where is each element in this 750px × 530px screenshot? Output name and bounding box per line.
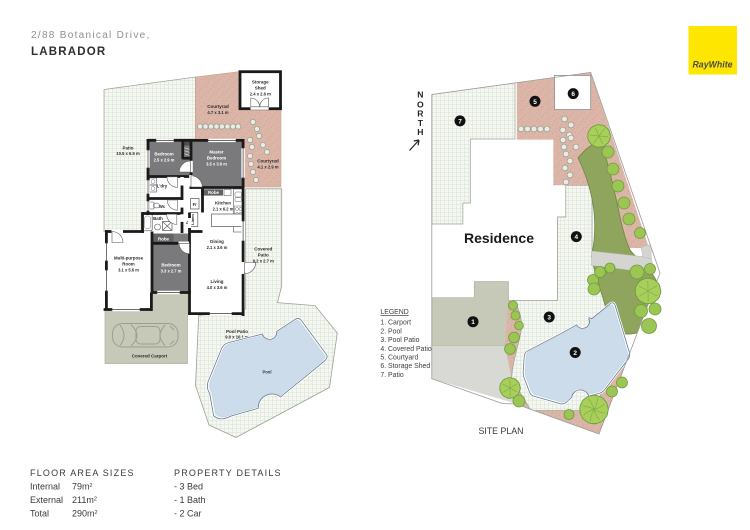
svg-text:Bath: Bath xyxy=(153,216,163,221)
svg-text:Pool: Pool xyxy=(262,370,271,375)
svg-text:H: H xyxy=(417,127,423,137)
svg-text:Multi-purpose: Multi-purpose xyxy=(114,256,144,261)
svg-text:3. Pool Patio: 3. Pool Patio xyxy=(380,337,419,344)
svg-text:3.1 x 5.6 m: 3.1 x 5.6 m xyxy=(118,268,139,273)
svg-text:7: 7 xyxy=(458,118,462,125)
svg-text:- 1 Bath: - 1 Bath xyxy=(174,495,206,505)
svg-text:Pool Patio: Pool Patio xyxy=(226,329,248,334)
svg-text:Patio: Patio xyxy=(122,146,133,151)
svg-text:6. Storage Shed: 6. Storage Shed xyxy=(380,363,430,370)
svg-text:Courtyrad: Courtyrad xyxy=(207,104,229,109)
svg-text:SITE PLAN: SITE PLAN xyxy=(479,426,524,436)
svg-text:Bedroom: Bedroom xyxy=(161,263,180,268)
svg-text:Covered Carport: Covered Carport xyxy=(132,353,168,358)
svg-text:1: 1 xyxy=(471,319,475,326)
svg-text:3.3 x 2.7 m: 3.3 x 2.7 m xyxy=(161,269,182,274)
svg-text:- 3 Bed: - 3 Bed xyxy=(174,482,203,492)
svg-text:N: N xyxy=(417,89,423,99)
svg-text:Bedroom: Bedroom xyxy=(154,152,173,157)
svg-text:L’dry: L’dry xyxy=(157,184,168,189)
svg-text:7. Patio: 7. Patio xyxy=(380,372,404,379)
svg-text:Covered: Covered xyxy=(254,247,272,252)
svg-text:3.5 x 3.6 m: 3.5 x 3.6 m xyxy=(206,162,227,167)
svg-text:2.5 x 2.9 m: 2.5 x 2.9 m xyxy=(154,158,175,163)
svg-text:4.7 x 3.1 m: 4.7 x 3.1 m xyxy=(207,110,228,115)
svg-text:4.1 x 2.9 m: 4.1 x 2.9 m xyxy=(257,165,278,170)
svg-text:Dining: Dining xyxy=(210,239,224,244)
svg-text:Residence: Residence xyxy=(464,230,534,246)
svg-text:Living: Living xyxy=(211,279,224,284)
svg-text:Shed: Shed xyxy=(255,86,266,91)
svg-text:2: 2 xyxy=(573,350,577,357)
svg-text:LEGEND: LEGEND xyxy=(380,309,408,316)
svg-text:Kitchen: Kitchen xyxy=(215,201,231,206)
svg-text:FLOOR AREA SIZES: FLOOR AREA SIZES xyxy=(30,468,135,478)
svg-text:290m2: 290m2 xyxy=(72,509,98,519)
svg-text:Robe: Robe xyxy=(158,237,170,242)
svg-text:79m2: 79m2 xyxy=(72,482,93,492)
svg-text:LABRADOR: LABRADOR xyxy=(31,46,106,58)
svg-text:Patio: Patio xyxy=(258,253,269,258)
svg-text:- 2 Car: - 2 Car xyxy=(174,509,202,519)
svg-text:5: 5 xyxy=(533,99,537,106)
svg-text:PROPERTY DETAILS: PROPERTY DETAILS xyxy=(174,468,282,478)
svg-text:2.1 x 6.2 m: 2.1 x 6.2 m xyxy=(213,207,234,212)
svg-text:Courtyrad: Courtyrad xyxy=(257,159,279,164)
svg-text:Wc: Wc xyxy=(159,204,166,209)
svg-text:3: 3 xyxy=(547,315,551,322)
svg-text:Bedroom: Bedroom xyxy=(207,156,226,161)
svg-text:1. Carport: 1. Carport xyxy=(380,320,411,327)
svg-text:2. Pool: 2. Pool xyxy=(380,328,402,335)
svg-text:RayWhite: RayWhite xyxy=(692,60,732,70)
svg-text:6: 6 xyxy=(571,91,575,98)
svg-text:Internal: Internal xyxy=(30,482,60,492)
svg-text:2/88 Botanical Drive,: 2/88 Botanical Drive, xyxy=(31,30,151,41)
svg-text:Robe: Robe xyxy=(208,190,220,195)
svg-text:Room: Room xyxy=(122,262,135,267)
svg-text:Fr: Fr xyxy=(193,202,198,207)
svg-text:4.0 x 3.6 m: 4.0 x 3.6 m xyxy=(207,285,228,290)
svg-text:10.5 x 6.5 m: 10.5 x 6.5 m xyxy=(116,151,140,156)
svg-text:Master: Master xyxy=(209,150,223,155)
svg-text:2.1 x 3.6 m: 2.1 x 3.6 m xyxy=(207,245,228,250)
svg-text:Storage: Storage xyxy=(252,80,269,85)
svg-text:5. Courtyard: 5. Courtyard xyxy=(380,355,418,362)
svg-text:Total: Total xyxy=(30,509,49,519)
svg-text:211m2: 211m2 xyxy=(72,495,97,505)
svg-text:External: External xyxy=(30,495,63,505)
svg-text:4: 4 xyxy=(574,234,578,241)
svg-text:4. Covered Patio: 4. Covered Patio xyxy=(380,346,431,353)
svg-text:2.4 x 2.6 m: 2.4 x 2.6 m xyxy=(250,92,271,97)
